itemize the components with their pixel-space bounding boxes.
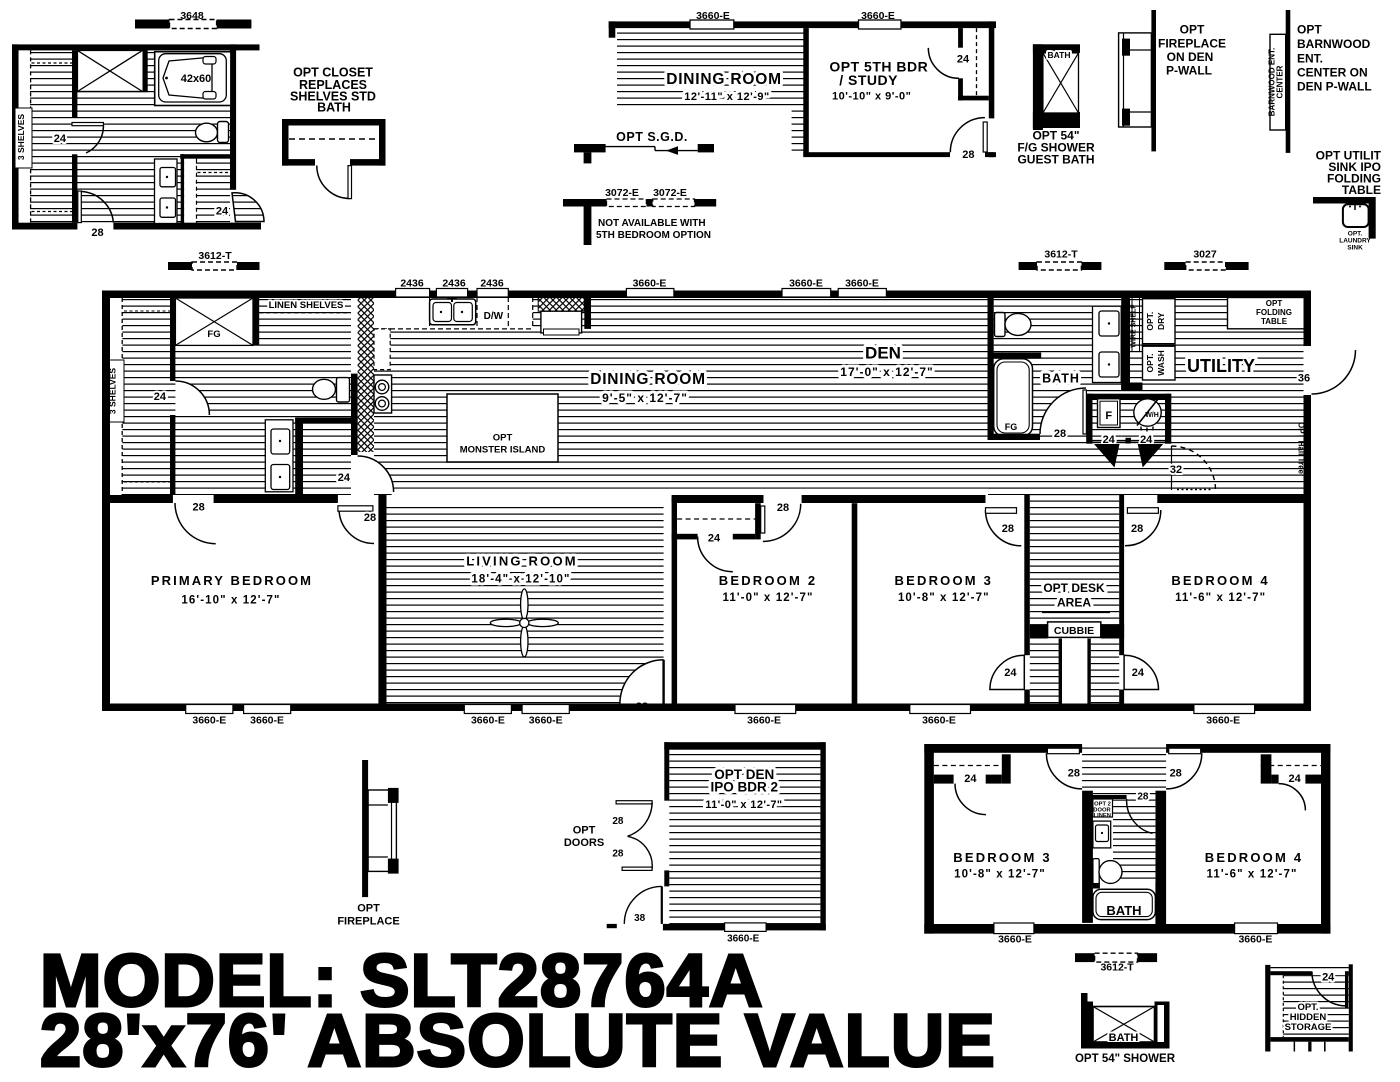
svg-text:F: F: [1105, 410, 1112, 422]
svg-text:3660-E: 3660-E: [922, 715, 956, 727]
svg-text:17'-0" x 12'-7": 17'-0" x 12'-7": [840, 365, 933, 379]
svg-text:ENT.: ENT.: [1297, 52, 1323, 66]
svg-text:D/W: D/W: [484, 311, 504, 322]
svg-text:LINEN SHELVES: LINEN SHELVES: [269, 300, 344, 311]
svg-text:38: 38: [634, 913, 646, 924]
svg-text:3660-E: 3660-E: [1238, 934, 1272, 946]
svg-text:3612-T: 3612-T: [198, 250, 232, 262]
svg-text:3660-E: 3660-E: [633, 278, 667, 290]
svg-text:SINK: SINK: [1347, 245, 1363, 252]
svg-text:24: 24: [1004, 667, 1017, 679]
svg-text:3660-E: 3660-E: [250, 715, 284, 727]
svg-text:BARNWOOD: BARNWOOD: [1297, 37, 1371, 51]
svg-text:FIREPLACE: FIREPLACE: [1158, 37, 1226, 51]
svg-text:PRIMARY BEDROOM: PRIMARY BEDROOM: [151, 573, 313, 588]
svg-text:5TH BEDROOM OPTION: 5TH BEDROOM OPTION: [596, 230, 711, 241]
svg-text:TABLE: TABLE: [1261, 317, 1288, 326]
svg-text:10'-8" x 12'-7": 10'-8" x 12'-7": [898, 592, 990, 604]
svg-text:UTILITY: UTILITY: [1187, 356, 1255, 376]
svg-text:TABLE: TABLE: [1342, 183, 1381, 197]
svg-text:BATH: BATH: [317, 101, 351, 115]
svg-text:CENTER: CENTER: [1276, 65, 1285, 98]
svg-text:3660-E: 3660-E: [192, 715, 226, 727]
svg-text:28: 28: [612, 849, 624, 860]
svg-text:GUEST BATH: GUEST BATH: [1017, 153, 1094, 167]
svg-text:28: 28: [777, 502, 789, 514]
svg-text:24: 24: [708, 533, 721, 545]
svg-text:OPT: OPT: [1266, 299, 1283, 308]
svg-text:28: 28: [1131, 523, 1143, 535]
svg-text:BATH: BATH: [1048, 50, 1071, 60]
svg-text:28: 28: [1068, 768, 1080, 780]
svg-text:CENTER ON: CENTER ON: [1297, 66, 1368, 80]
svg-text:DOORS: DOORS: [564, 837, 604, 849]
svg-text:11'-6" x 12'-7": 11'-6" x 12'-7": [1206, 869, 1297, 881]
svg-text:10'-8" x 12'-7": 10'-8" x 12'-7": [954, 869, 1046, 881]
svg-text:LIVING ROOM: LIVING ROOM: [466, 554, 578, 569]
svg-text:10'-10" x 9'-0": 10'-10" x 9'-0": [832, 91, 911, 103]
svg-text:9'-5" x 12'-7": 9'-5" x 12'-7": [602, 391, 688, 405]
svg-text:11'-6" x 12'-7": 11'-6" x 12'-7": [1175, 592, 1266, 604]
svg-text:3072-E: 3072-E: [605, 187, 639, 199]
svg-text:28: 28: [962, 149, 974, 161]
svg-text:11'-0" x 12'-7": 11'-0" x 12'-7": [705, 799, 782, 811]
svg-text:FG: FG: [1005, 422, 1018, 432]
svg-text:ON DEN: ON DEN: [1167, 50, 1214, 64]
svg-text:W/H: W/H: [1145, 412, 1159, 419]
svg-text:2436: 2436: [480, 278, 504, 290]
svg-text:WIRE SHELF: WIRE SHELF: [1131, 304, 1138, 348]
svg-text:24: 24: [1322, 972, 1335, 984]
svg-text:3660-E: 3660-E: [789, 278, 823, 290]
svg-text:OPT.: OPT.: [1145, 354, 1155, 373]
svg-text:24: 24: [1132, 667, 1145, 679]
svg-text:MONSTER ISLAND: MONSTER ISLAND: [460, 445, 546, 456]
svg-text:28: 28: [1054, 428, 1066, 440]
svg-text:P-WALL: P-WALL: [1166, 64, 1212, 78]
svg-text:42x60: 42x60: [181, 73, 212, 85]
svg-text:3660-E: 3660-E: [747, 715, 781, 727]
svg-text:OPT 54" SHOWER: OPT 54" SHOWER: [1075, 1053, 1176, 1065]
svg-text:24: 24: [154, 391, 167, 403]
svg-text:OPT: OPT: [357, 903, 380, 915]
svg-text:BATH: BATH: [1106, 903, 1141, 918]
svg-text:12'-11" x 12'-9": 12'-11" x 12'-9": [684, 91, 769, 103]
svg-text:3660-E: 3660-E: [529, 715, 563, 727]
svg-text:/ STUDY: / STUDY: [839, 72, 898, 88]
svg-text:OPT: OPT: [573, 825, 596, 837]
svg-text:24: 24: [54, 133, 67, 145]
svg-text:28: 28: [192, 502, 204, 514]
svg-text:OPT: OPT: [1180, 23, 1205, 37]
svg-text:28: 28: [1137, 792, 1149, 803]
svg-text:OPT DESK: OPT DESK: [1043, 581, 1105, 595]
svg-text:3027: 3027: [1193, 249, 1217, 261]
svg-text:BATH: BATH: [1042, 372, 1080, 386]
svg-text:OPT: OPT: [493, 433, 513, 444]
svg-text:24: 24: [216, 206, 229, 218]
svg-text:CUBBIE: CUBBIE: [1054, 625, 1094, 637]
svg-text:BEDROOM 3: BEDROOM 3: [895, 573, 994, 588]
svg-text:DRY: DRY: [1156, 312, 1166, 330]
svg-text:2436: 2436: [400, 278, 424, 290]
svg-text:24: 24: [957, 54, 970, 66]
svg-text:WASH: WASH: [1156, 350, 1166, 376]
svg-text:NOT AVAILABLE WITH: NOT AVAILABLE WITH: [598, 218, 706, 229]
svg-text:3660-E: 3660-E: [845, 278, 879, 290]
svg-text:BEDROOM 4: BEDROOM 4: [1171, 573, 1270, 588]
svg-text:24: 24: [1288, 773, 1301, 785]
svg-text:STORAGE: STORAGE: [1285, 1022, 1332, 1033]
svg-text:BEDROOM 3: BEDROOM 3: [953, 850, 1052, 865]
svg-text:FG: FG: [207, 329, 220, 340]
svg-text:DEN P-WALL: DEN P-WALL: [1297, 80, 1372, 94]
svg-text:16'-10" x 12'-7": 16'-10" x 12'-7": [181, 595, 280, 607]
svg-text:DEN: DEN: [865, 344, 901, 363]
svg-text:11'-0" x 12'-7": 11'-0" x 12'-7": [722, 592, 813, 604]
svg-text:24: 24: [964, 773, 977, 785]
svg-text:OPT.: OPT.: [1145, 312, 1155, 331]
svg-text:AREA: AREA: [1057, 596, 1091, 610]
svg-text:3660-E: 3660-E: [471, 715, 505, 727]
svg-text:LAUNDRY: LAUNDRY: [1339, 238, 1371, 245]
svg-text:3612-T: 3612-T: [1100, 962, 1134, 974]
svg-text:LINEN: LINEN: [1094, 813, 1111, 819]
svg-text:BEDROOM 2: BEDROOM 2: [719, 573, 818, 588]
svg-text:FOLDING: FOLDING: [1256, 308, 1292, 317]
svg-text:28'x76' ABSOLUTE VALUE: 28'x76' ABSOLUTE VALUE: [40, 999, 996, 1082]
svg-text:3612-T: 3612-T: [1044, 249, 1078, 261]
svg-text:28: 28: [612, 816, 624, 827]
svg-text:28: 28: [1002, 523, 1014, 535]
svg-text:DINING ROOM: DINING ROOM: [666, 71, 782, 88]
svg-text:OPT: OPT: [1297, 23, 1322, 37]
svg-text:28: 28: [91, 227, 103, 239]
svg-text:3 SHELVES: 3 SHELVES: [16, 114, 26, 160]
svg-text:18'-4" x 12'-10": 18'-4" x 12'-10": [471, 574, 570, 586]
svg-text:24: 24: [338, 472, 351, 484]
svg-text:FIREPLACE: FIREPLACE: [337, 916, 399, 928]
svg-text:28: 28: [364, 512, 376, 524]
svg-text:BEDROOM 4: BEDROOM 4: [1205, 850, 1304, 865]
svg-text:DINING ROOM: DINING ROOM: [590, 371, 706, 388]
svg-text:3072-E: 3072-E: [653, 187, 687, 199]
svg-text:OPT.: OPT.: [1348, 231, 1363, 238]
svg-text:3660-E: 3660-E: [1206, 715, 1240, 727]
svg-text:3660-E: 3660-E: [998, 934, 1032, 946]
svg-text:IPO BDR 2: IPO BDR 2: [711, 780, 779, 795]
svg-text:2436: 2436: [442, 278, 466, 290]
svg-text:28: 28: [1170, 768, 1182, 780]
svg-text:32: 32: [1170, 464, 1182, 476]
svg-text:36: 36: [1298, 373, 1310, 385]
svg-text:OPT S.G.D.: OPT S.G.D.: [616, 130, 688, 144]
